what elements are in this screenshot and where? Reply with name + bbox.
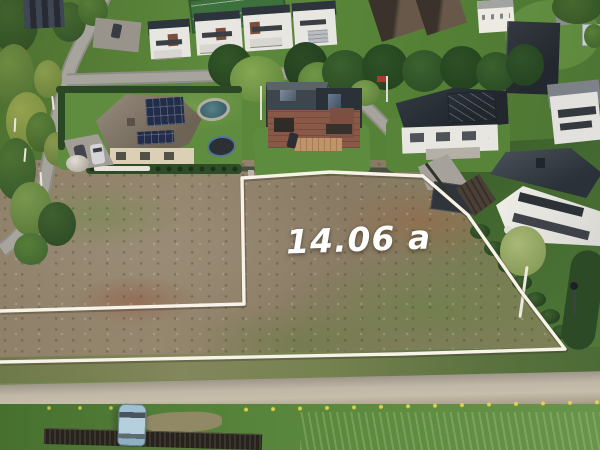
window-band [116, 152, 186, 160]
flagpole [386, 76, 388, 102]
concrete-post [248, 170, 254, 178]
chimney [536, 158, 545, 168]
solar-panel-array [145, 97, 185, 127]
red-flag [377, 76, 386, 82]
thuja-hedge [526, 292, 546, 307]
terrace [294, 138, 342, 151]
birch-tree [500, 226, 546, 276]
dome-greenhouse [66, 155, 89, 172]
hedge [56, 86, 242, 93]
pine-tree [506, 44, 544, 86]
thuja-hedge [540, 309, 560, 324]
roof-skylight [280, 90, 296, 101]
hedge [58, 90, 65, 150]
blue-car [117, 404, 146, 447]
terrace [426, 147, 480, 160]
white-house [550, 92, 600, 145]
white-balustrade [94, 166, 150, 171]
tall-grass-texture [300, 412, 600, 450]
flagpole [260, 86, 262, 120]
chimney [127, 118, 135, 126]
entry-canopy [154, 49, 183, 60]
tree [584, 24, 600, 48]
dark-roof-building [23, 0, 65, 29]
thuja-hedge [470, 224, 490, 239]
glass-roof-panel [447, 91, 497, 123]
area-label: 14.06 a [285, 217, 431, 261]
window [326, 124, 352, 134]
aerial-photo: 14.06 a [0, 0, 600, 450]
solar-panel-array [137, 130, 175, 145]
grass-shoulder [14, 233, 48, 265]
window [274, 118, 294, 132]
street-lamp [570, 282, 578, 290]
garage-door [308, 29, 329, 43]
lamp-pole [573, 290, 576, 314]
